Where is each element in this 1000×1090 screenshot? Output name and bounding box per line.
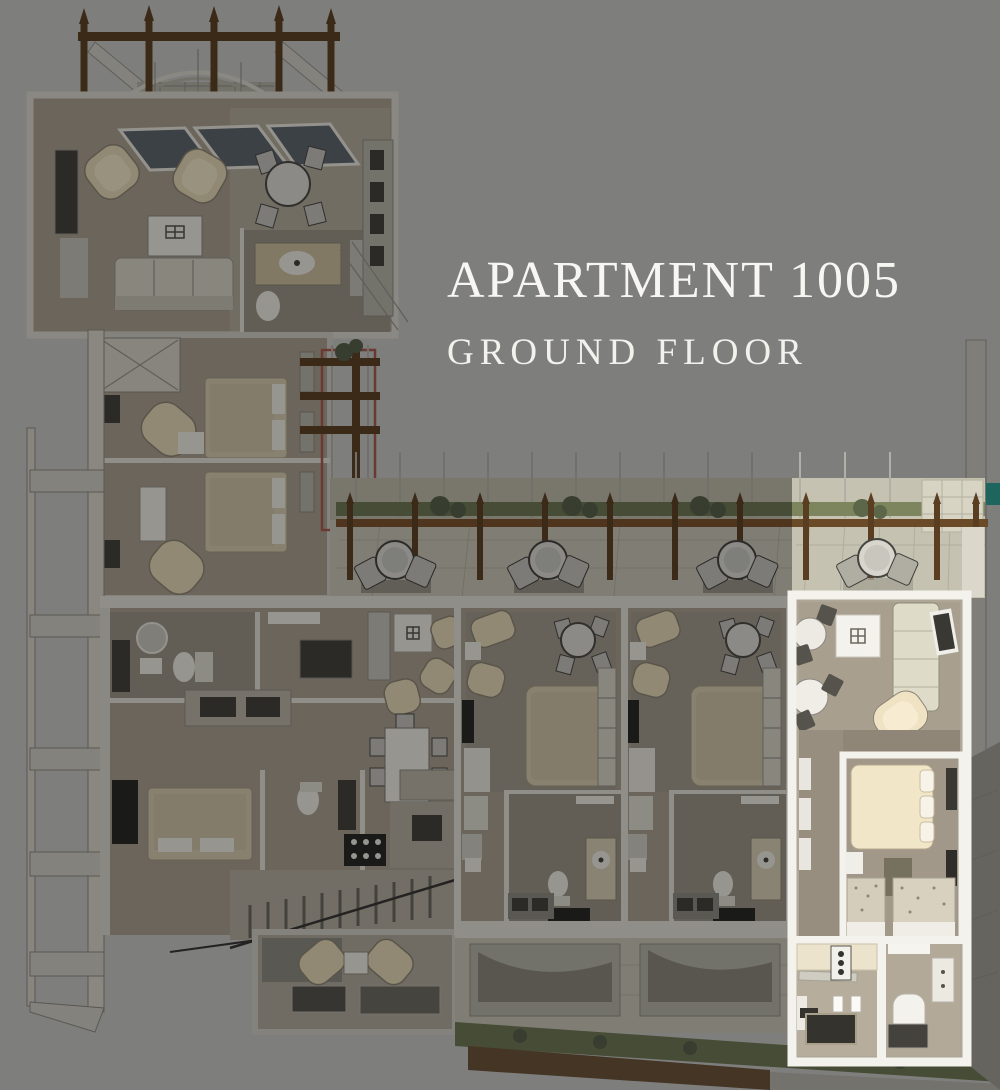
floorplan-render: APARTMENT 1005 GROUND FLOOR	[0, 0, 1000, 1090]
faucet	[851, 996, 861, 1012]
counter-sink-1005	[806, 1014, 856, 1044]
bath-mat	[888, 1024, 928, 1048]
bathroom-1005	[886, 944, 960, 1056]
area-rug-1005	[836, 615, 880, 657]
dressers-1005	[847, 878, 955, 936]
page-subtitle: GROUND FLOOR	[447, 331, 901, 374]
title-block: APARTMENT 1005 GROUND FLOOR	[447, 252, 901, 374]
apartment-1005-unit	[792, 595, 967, 1062]
kitchen-1005	[797, 944, 877, 1056]
window-1005	[946, 768, 957, 810]
faucet	[833, 996, 843, 1012]
nightstand	[845, 852, 863, 874]
apartment-1005-highlight	[792, 452, 988, 1062]
bedroom-1005	[843, 755, 962, 940]
page-title: APARTMENT 1005	[447, 252, 901, 309]
floorplan-svg	[0, 0, 1000, 1090]
